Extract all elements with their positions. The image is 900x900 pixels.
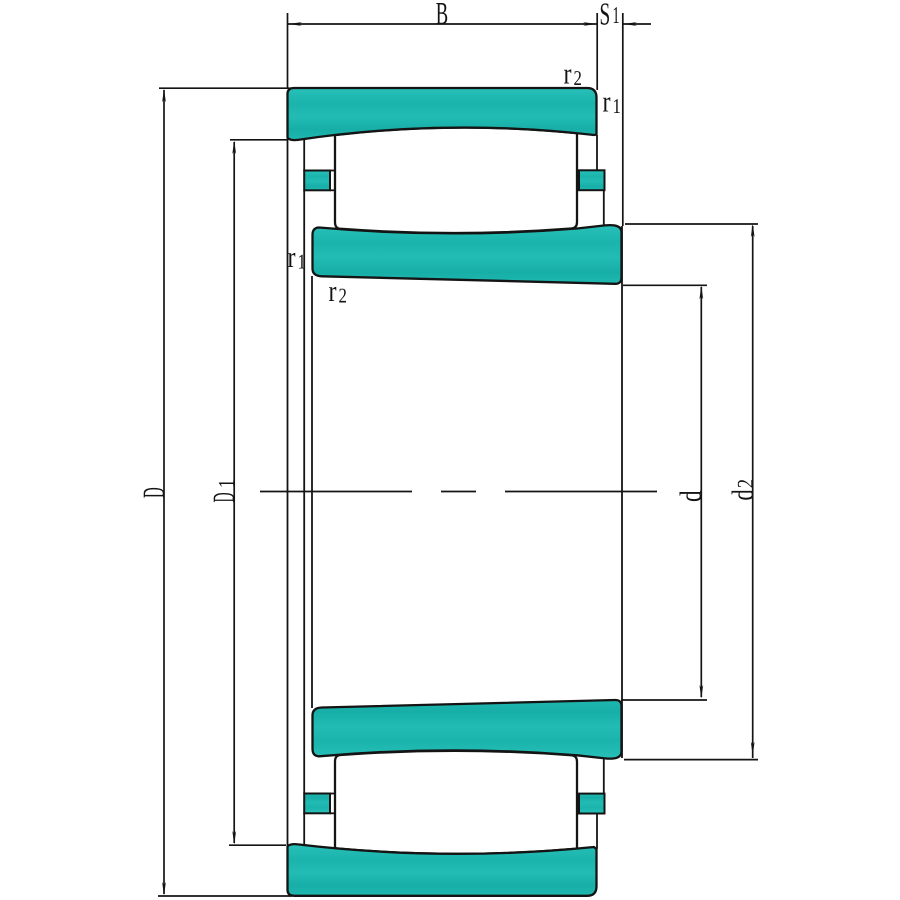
svg-text:2: 2	[733, 479, 758, 488]
svg-text:r: r	[288, 241, 296, 274]
svg-text:D: D	[136, 487, 171, 498]
svg-text:r: r	[329, 275, 337, 308]
svg-text:1: 1	[612, 3, 619, 29]
svg-text:2: 2	[339, 284, 347, 308]
svg-text:D: D	[206, 492, 241, 502]
svg-text:1: 1	[298, 250, 306, 274]
svg-text:B: B	[436, 0, 448, 31]
svg-text:d: d	[673, 490, 708, 502]
svg-text:1: 1	[613, 94, 621, 118]
svg-text:d: d	[725, 489, 760, 501]
svg-text:S: S	[600, 0, 611, 32]
svg-text:r: r	[564, 58, 572, 91]
svg-text:2: 2	[574, 66, 582, 90]
svg-text:r: r	[603, 86, 611, 119]
svg-text:1: 1	[214, 479, 239, 488]
